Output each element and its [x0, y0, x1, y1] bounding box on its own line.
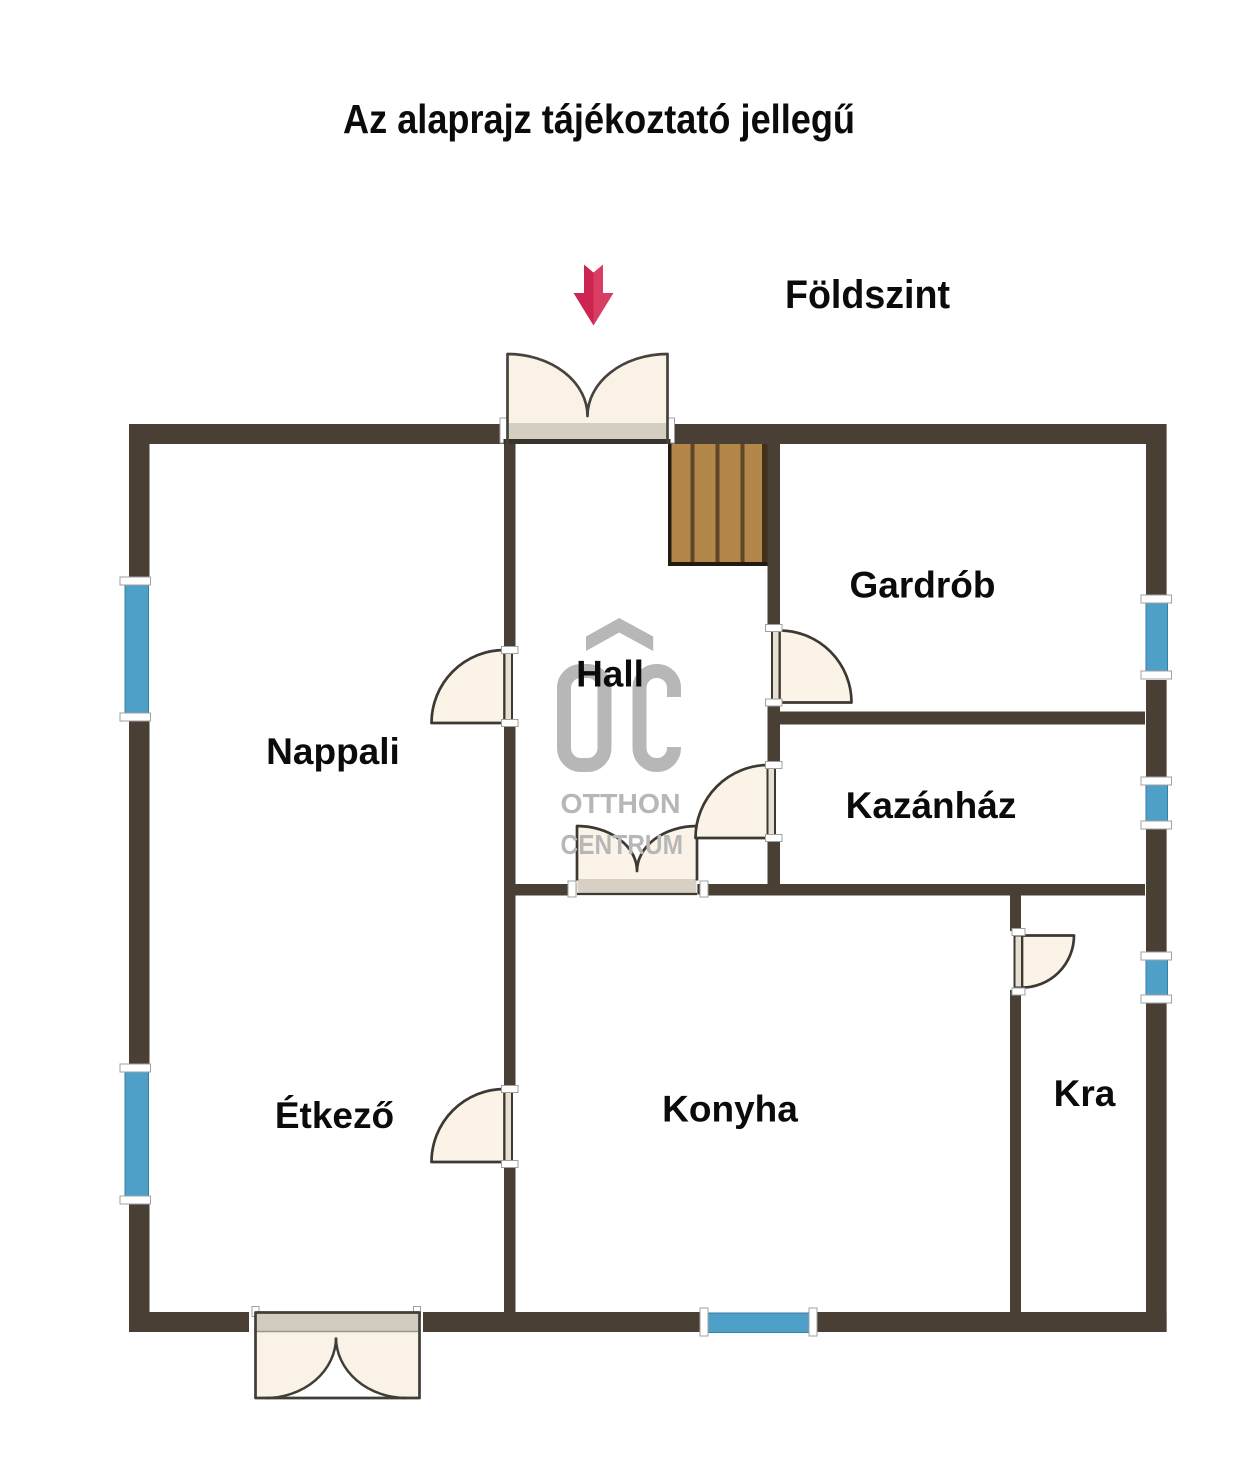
svg-text:CENTRUM: CENTRUM — [561, 829, 684, 860]
svg-text:Kra: Kra — [1054, 1073, 1116, 1114]
svg-text:Konyha: Konyha — [662, 1089, 798, 1130]
svg-text:Gardrób: Gardrób — [850, 565, 996, 606]
svg-text:OTTHON: OTTHON — [561, 788, 681, 819]
svg-text:Étkező: Étkező — [275, 1095, 394, 1136]
svg-text:Hall: Hall — [576, 654, 644, 695]
svg-text:Nappali: Nappali — [266, 731, 400, 772]
svg-text:Kazánház: Kazánház — [846, 785, 1017, 826]
svg-text:Az alaprajz tájékoztató jelleg: Az alaprajz tájékoztató jellegű — [343, 96, 855, 142]
svg-text:Földszint: Földszint — [785, 273, 950, 317]
